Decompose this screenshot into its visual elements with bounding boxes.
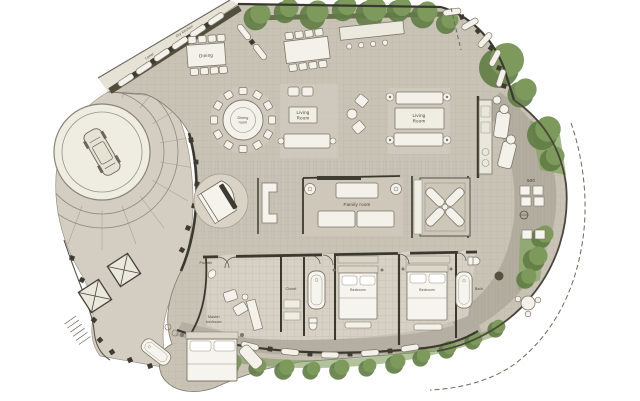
label-round-dining: room xyxy=(239,121,248,125)
chaise-pinwheel xyxy=(420,178,470,236)
label-powder: Powder xyxy=(199,261,213,265)
label-family-room: Family room xyxy=(344,202,371,207)
label-living-room-center: Room xyxy=(297,116,310,121)
stairs xyxy=(65,316,91,345)
label-master-bedroom: bedroom xyxy=(206,320,221,324)
toilet xyxy=(468,257,480,265)
label-round-dining: Dining xyxy=(237,116,248,120)
floor-plan-image: Dry kitchen Lanai Dining Dining room Liv… xyxy=(0,0,640,401)
grand-piano xyxy=(194,174,248,228)
label-bedroom-center: Bedroom xyxy=(350,288,366,292)
toilet xyxy=(309,318,317,330)
label-closet: Closet xyxy=(285,287,296,291)
pinwheel-room-sideboard xyxy=(414,180,422,234)
car-turntable xyxy=(54,104,150,200)
label-living-room-center: Living xyxy=(297,110,310,115)
bedroom-center xyxy=(333,256,384,328)
kitchen-counter xyxy=(479,100,492,174)
floor-plan-canvas: Dry kitchen Lanai Dining Dining room Liv… xyxy=(0,0,640,401)
potted-plant-icon xyxy=(495,272,504,281)
label-living-room-right: Room xyxy=(413,119,426,124)
label-dimension-500: 500 xyxy=(527,178,535,183)
label-bath-right: Bath xyxy=(475,287,483,291)
label-dining: Dining xyxy=(199,52,214,58)
label-master-bedroom: Master xyxy=(208,315,221,319)
bedroom-right xyxy=(402,256,453,330)
label-bedroom-right: Bedroom xyxy=(419,288,435,292)
label-living-room-right: Living xyxy=(413,113,426,118)
